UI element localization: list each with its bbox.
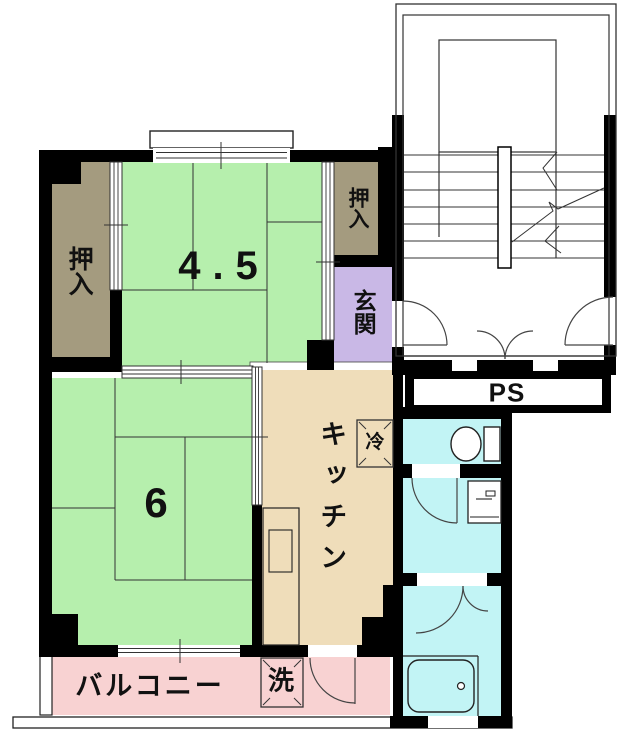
closet-left-label: 押入 xyxy=(66,246,92,296)
neighbor-door-gap xyxy=(604,297,616,345)
balcony-door-gap xyxy=(308,645,357,657)
staircase xyxy=(396,4,616,356)
washing-machine-label: 洗 xyxy=(268,667,294,694)
kitchen-counter xyxy=(263,508,299,645)
closet-upper-label: 押入 xyxy=(346,187,368,229)
floor-plan-svg xyxy=(0,0,626,734)
bath-bottom-gap xyxy=(428,716,478,728)
bathroom-fill xyxy=(403,586,501,716)
hall-double-door xyxy=(477,331,533,359)
front-door xyxy=(403,301,447,345)
kitchen-label: キッチン xyxy=(317,420,345,584)
room-6-label: 6 xyxy=(144,481,167,525)
entrance-label: 玄関 xyxy=(351,289,375,335)
refrigerator-label: 冷 xyxy=(365,433,384,453)
washroom-door-gap xyxy=(412,464,460,478)
sink-icon xyxy=(468,481,501,523)
balcony-label: バルコニー xyxy=(75,672,224,700)
stair-break-lines xyxy=(512,152,604,253)
bathtub-drain xyxy=(458,683,465,690)
front-door-gap xyxy=(392,301,404,347)
bath-door-gap xyxy=(417,573,487,586)
room-45-label: 4.5 xyxy=(178,245,270,287)
balcony-divider xyxy=(40,655,52,715)
floor-plan: 押入 押入 玄関 4.5 6 キッチン 冷 洗 バルコニー PS xyxy=(0,0,626,734)
toilet-icon xyxy=(451,427,500,461)
stair-handrail xyxy=(498,147,511,268)
pipe-space-label: PS xyxy=(489,379,526,406)
